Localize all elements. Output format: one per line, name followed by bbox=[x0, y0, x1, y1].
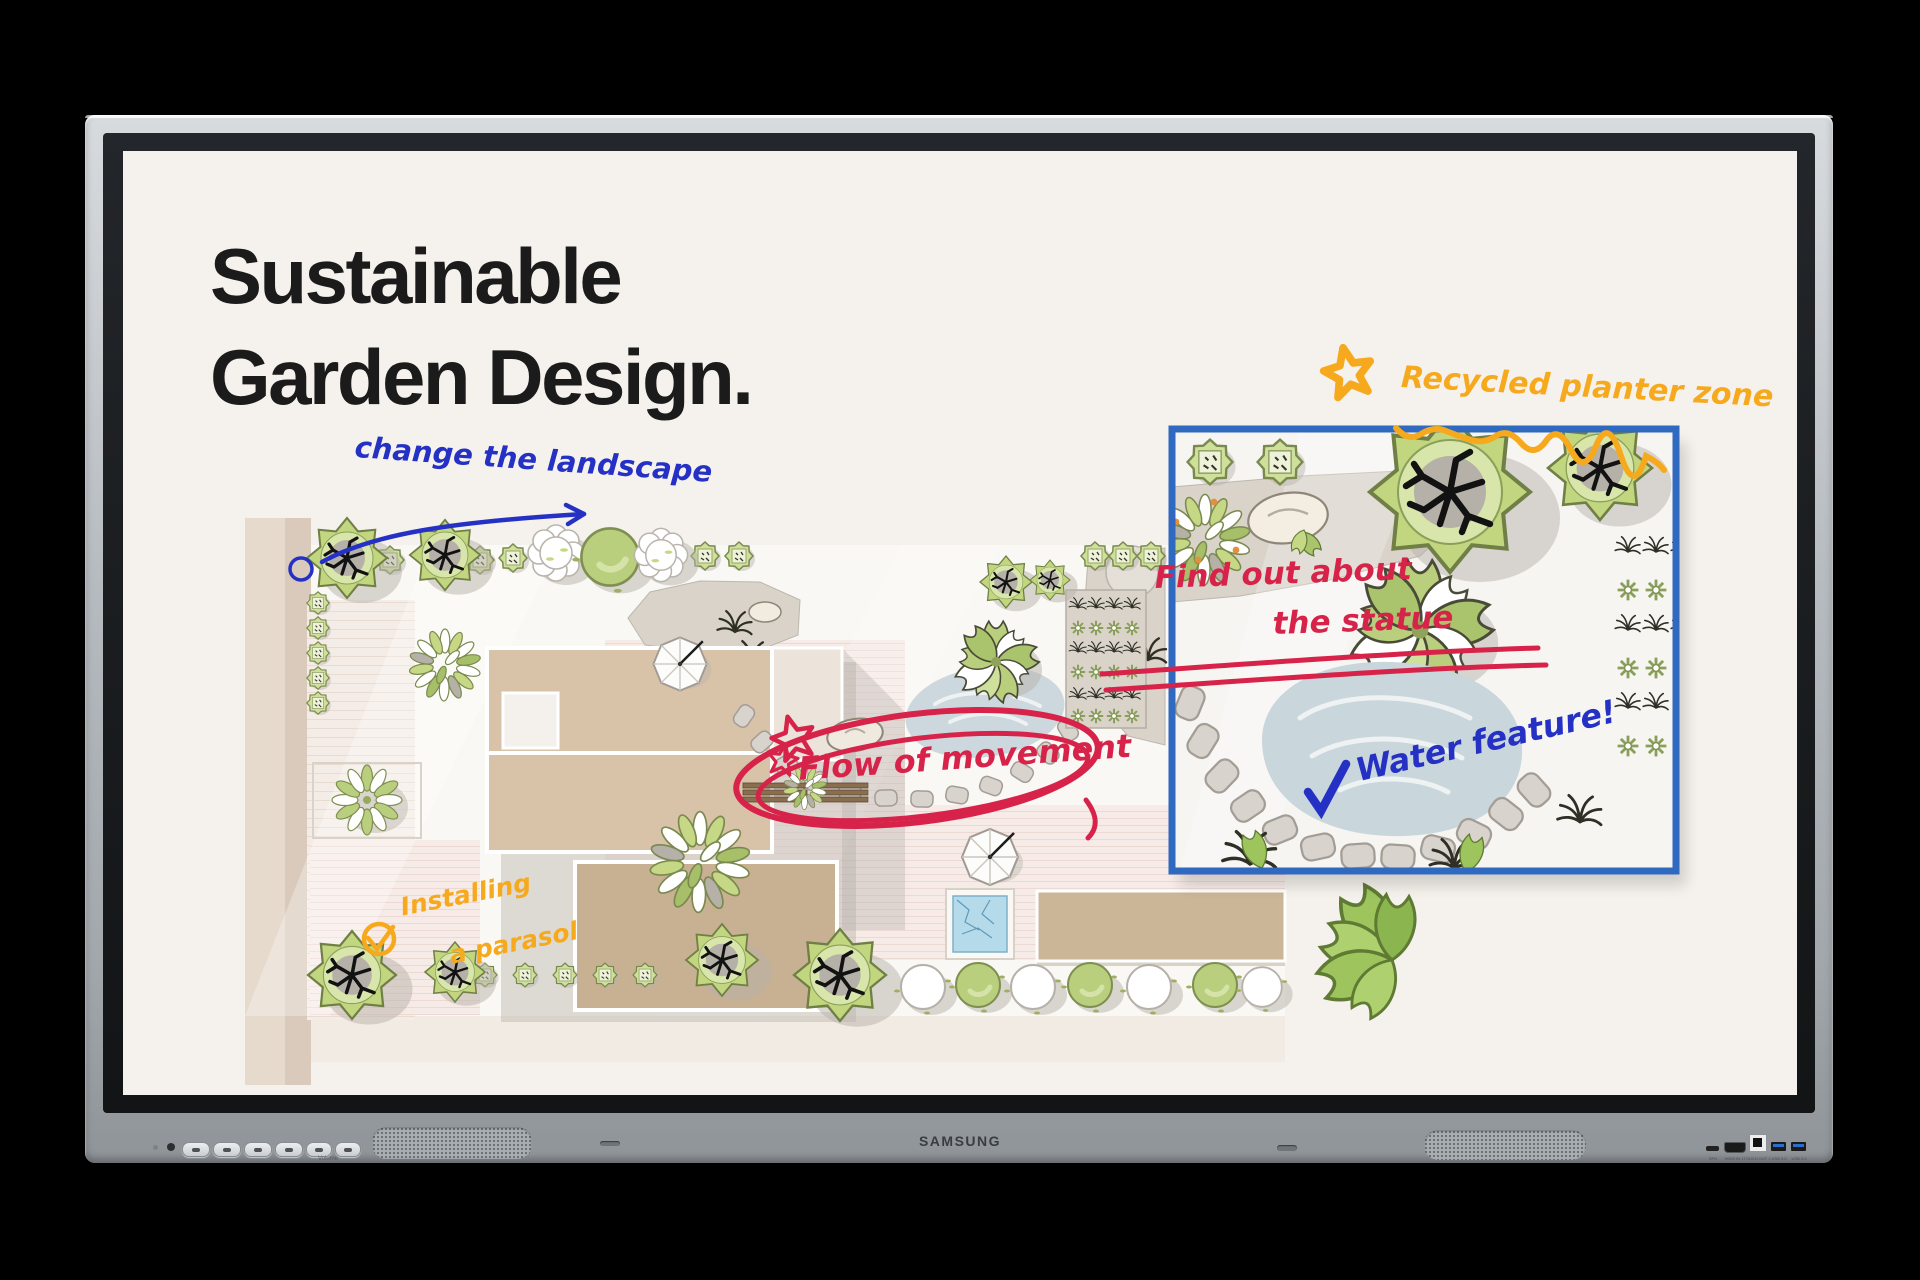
volume-caption: Volume bbox=[300, 1156, 356, 1162]
title-line-1: Sustainable bbox=[210, 226, 751, 327]
spdif-port bbox=[1706, 1146, 1719, 1151]
usb-tongue bbox=[1793, 1144, 1804, 1147]
port-label: USB 3.0 bbox=[1784, 1156, 1814, 1161]
touch-out-port bbox=[1749, 1134, 1767, 1152]
usb-tongue bbox=[1773, 1144, 1784, 1147]
touch-out-socket bbox=[1753, 1138, 1762, 1147]
samsung-logo: SAMSUNG bbox=[0, 1133, 1920, 1149]
usb-port bbox=[1791, 1142, 1806, 1151]
product-shot-background: Sustainable Garden Design. change the la… bbox=[0, 0, 1920, 1280]
annotation-the-statue: the statue bbox=[1272, 600, 1454, 642]
bezel-top-highlight bbox=[85, 115, 1833, 118]
hdmi-port bbox=[1724, 1142, 1746, 1153]
page-title: Sustainable Garden Design. bbox=[210, 226, 751, 427]
title-line-2: Garden Design. bbox=[210, 327, 751, 428]
usb-port bbox=[1771, 1142, 1786, 1151]
